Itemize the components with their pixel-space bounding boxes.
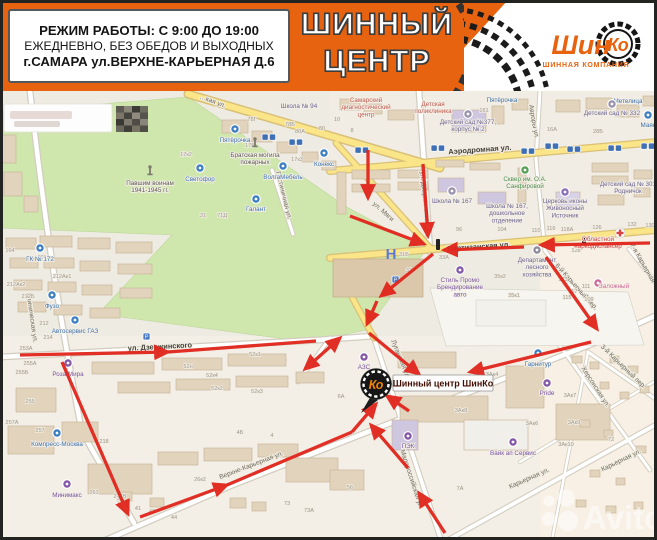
poi-icon-dot	[323, 152, 326, 155]
pin-label: Ко	[369, 378, 384, 392]
house-number: 111	[582, 284, 591, 290]
house-number: 257	[35, 428, 44, 434]
tram-stop-icon[interactable]	[521, 148, 527, 154]
tram-stop-icon[interactable]	[574, 146, 580, 152]
tram-stop-icon[interactable]	[552, 143, 558, 149]
poi-icon-dot	[51, 294, 54, 297]
house-number: 8	[350, 128, 353, 134]
house-number: 212Ак2	[7, 282, 26, 288]
house-number: 132	[627, 222, 636, 228]
poi-icon-dot	[451, 190, 454, 193]
tire-tread-icon	[464, 9, 549, 91]
tram-stop-icon[interactable]	[431, 145, 437, 151]
poi-label: Павшим воинам1941-1945 гг.	[126, 180, 174, 194]
monument-icon	[252, 146, 257, 148]
house-number: 109	[584, 297, 593, 303]
house-number: 10	[334, 117, 340, 123]
poi-label: Светофор	[185, 176, 215, 183]
house-number: 3Ак9	[568, 420, 580, 426]
house-number: 255	[25, 399, 34, 405]
monument-icon	[253, 137, 256, 140]
working-hours-box: РЕЖИМ РАБОТЫ: С 9:00 ДО 19:00 ЕЖЕДНЕВНО,…	[8, 9, 290, 83]
house-number: 218	[99, 439, 108, 445]
pixelated-patch	[116, 106, 148, 132]
poi-icon-dot	[512, 441, 515, 444]
tram-stop-icon[interactable]	[615, 145, 621, 151]
house-number: 44	[171, 515, 177, 521]
tram-stop-icon[interactable]	[608, 145, 614, 151]
poi-label: Школа № 167,дошкольноеотделение	[486, 203, 528, 224]
poi-icon-dot	[459, 269, 462, 272]
house-number: 52к4	[206, 373, 218, 379]
hospital-letter: Н	[386, 246, 397, 263]
poi-icon-dot	[255, 198, 258, 201]
crossing-icon	[436, 239, 440, 250]
poi-label: Пятёрочка	[487, 97, 518, 104]
house-number: 78Г	[247, 117, 256, 123]
poi-label: ПЭК	[402, 443, 415, 450]
route-arrow	[541, 243, 650, 245]
house-number: 257А	[5, 420, 18, 426]
house-number: 4	[270, 433, 273, 439]
tram-stop-icon[interactable]	[641, 143, 647, 149]
tram-stop-icon[interactable]	[296, 139, 302, 145]
poi-label: Конекс	[314, 161, 334, 168]
house-number: 52к1	[249, 352, 261, 358]
house-number: 96	[456, 227, 462, 233]
poi-label: Метелица	[613, 98, 643, 105]
monument-icon	[254, 140, 256, 146]
house-number: 73	[284, 501, 290, 507]
house-number: 80	[319, 126, 325, 132]
house-number: 28Б	[593, 129, 603, 135]
house-number: 52к2	[211, 386, 223, 392]
poi-label: Детский сад № 332	[584, 109, 641, 117]
poi-icon-dot	[611, 103, 614, 106]
monument-icon	[149, 168, 151, 174]
poi-icon-dot	[407, 435, 410, 438]
poi-icon-dot	[647, 114, 650, 117]
poi-icon-dot	[74, 319, 77, 322]
route-map[interactable]: Н …кая ул.Аэродромная ул.ул. Дзержинског…	[0, 91, 657, 537]
poi-label: Pride	[540, 390, 555, 397]
house-number: 78Б	[285, 122, 295, 128]
house-number: 164	[5, 248, 14, 254]
house-number: 72	[608, 437, 614, 443]
house-number: 130	[645, 223, 654, 229]
monument-icon	[147, 174, 152, 176]
logo-shin: Шин	[551, 30, 610, 60]
house-number: 26к2	[194, 477, 206, 483]
house-number: 3Ак10	[558, 442, 574, 448]
poi-icon-dot	[564, 191, 567, 194]
tram-stop-icon[interactable]	[545, 143, 551, 149]
tram-stop-icon[interactable]	[648, 143, 654, 149]
poi-label: Маяк	[641, 122, 656, 129]
shinko-logo: Шин Ко ШИННАЯ КОМПАНИЯ	[464, 0, 657, 91]
poi-icon-dot	[199, 167, 202, 170]
tram-stop-icon[interactable]	[355, 147, 361, 153]
house-number: 31	[200, 213, 206, 219]
monument-icon	[148, 165, 151, 168]
poi-label: Школа № 167	[432, 198, 472, 205]
logo-subtitle: ШИННАЯ КОМПАНИЯ	[543, 62, 630, 69]
poi-icon-dot	[56, 432, 59, 435]
working-hours: РЕЖИМ РАБОТЫ: С 9:00 ДО 19:00	[10, 23, 288, 38]
poi-icon-dot	[467, 113, 470, 116]
house-number: 33А	[439, 255, 449, 261]
header-banner: РЕЖИМ РАБОТЫ: С 9:00 ДО 19:00 ЕЖЕДНЕВНО,…	[0, 0, 657, 91]
house-number: 115	[563, 295, 572, 301]
poi-icon-dot	[536, 249, 539, 252]
poi-icon-dot	[234, 128, 237, 131]
house-number: 255Б	[15, 370, 28, 376]
poi-label: Вайк ап Сервис	[490, 449, 536, 457]
house-number: 118А	[561, 227, 574, 233]
poi-label: Галант	[246, 206, 266, 213]
poi-label: Заложный	[599, 282, 630, 290]
house-number: 261	[89, 490, 98, 496]
house-number: 255А	[23, 361, 36, 367]
poi-icon-dot	[39, 247, 42, 250]
house-number: 116	[547, 226, 556, 232]
house-number: 52н	[183, 364, 192, 370]
tram-stop-icon[interactable]	[269, 134, 275, 140]
tram-stop-icon[interactable]	[289, 139, 295, 145]
map-pin-callout: Шинный центр ШинКо	[393, 375, 494, 391]
house-number: 7А	[457, 486, 464, 492]
poi-label: Школа № 94	[281, 103, 318, 110]
house-number: 16А	[547, 127, 557, 133]
poi-icon-dot	[66, 483, 69, 486]
tram-stop-icon[interactable]	[262, 134, 268, 140]
poi-label: Пятёрочка	[220, 137, 251, 144]
house-number: 73А	[304, 508, 314, 514]
working-days: ЕЖЕДНЕВНО, БЕЗ ОБЕДОВ И ВЫХОДНЫХ	[10, 39, 288, 53]
house-number: 35к2	[494, 274, 506, 280]
hospital-icon	[617, 232, 624, 234]
house-number: 3Ак7	[564, 393, 576, 399]
poi-icon-dot	[67, 362, 70, 365]
logo-ko: Ко	[607, 35, 628, 55]
house-number: 31Б	[399, 252, 409, 258]
house-number: 80А	[295, 129, 305, 135]
house-number: 212Б	[21, 294, 34, 300]
house-number: 126	[592, 225, 601, 231]
poi-label: Компресс-Москва	[31, 441, 83, 448]
tram-stop-icon[interactable]	[438, 145, 444, 151]
house-number: 212	[39, 321, 48, 327]
house-number: 35к1	[508, 293, 520, 299]
poi-label: ВолгаМебель	[263, 173, 303, 181]
poi-label: Фузо	[45, 303, 60, 310]
house-number: 253А	[19, 346, 32, 352]
house-number: 41	[135, 506, 141, 512]
poi-icon-dot	[524, 169, 527, 172]
house-number: 17к2	[180, 152, 192, 158]
house-number: 52к3	[251, 389, 263, 395]
house-number: 4Б	[237, 430, 244, 436]
poi-label: АЗС	[358, 364, 371, 371]
house-number: 110	[532, 228, 541, 234]
address: г.САМАРА ул.ВЕРХНЕ-КАРЬЕРНАЯ Д.6	[10, 54, 288, 69]
house-number: 17к3	[291, 157, 303, 163]
poi-label: Гарнитур	[525, 361, 552, 368]
house-number: 214	[43, 335, 52, 341]
logo-panel: Шин Ко ШИННАЯ КОМПАНИЯ	[464, 0, 657, 91]
house-number: 212Ак1	[53, 274, 72, 280]
house-number: 161	[479, 108, 488, 114]
poi-label: Минимакс	[52, 492, 82, 499]
poi-label: Автосервис ГАЗ	[52, 328, 99, 335]
house-number: 56	[347, 485, 353, 491]
house-number: 3Ак6	[526, 421, 538, 427]
tram-stop-icon[interactable]	[528, 148, 534, 154]
destination-label: Шинный центр ШинКо	[393, 379, 494, 389]
censored-region	[4, 104, 148, 132]
poi-icon-dot	[363, 356, 366, 359]
house-number: 104	[497, 227, 506, 233]
poi-label: ГК № 172	[26, 256, 54, 263]
poi-icon-dot	[282, 165, 285, 168]
poi-label: Сквер им. О.А.Санфировой	[503, 176, 547, 190]
tram-stop-icon[interactable]	[567, 146, 573, 152]
house-number: 6А	[338, 394, 345, 400]
house-number: 3Ак8	[455, 408, 467, 414]
house-number: 71Д	[217, 213, 227, 219]
watermark-text: Avito	[583, 499, 657, 536]
poi-icon-dot	[546, 382, 549, 385]
